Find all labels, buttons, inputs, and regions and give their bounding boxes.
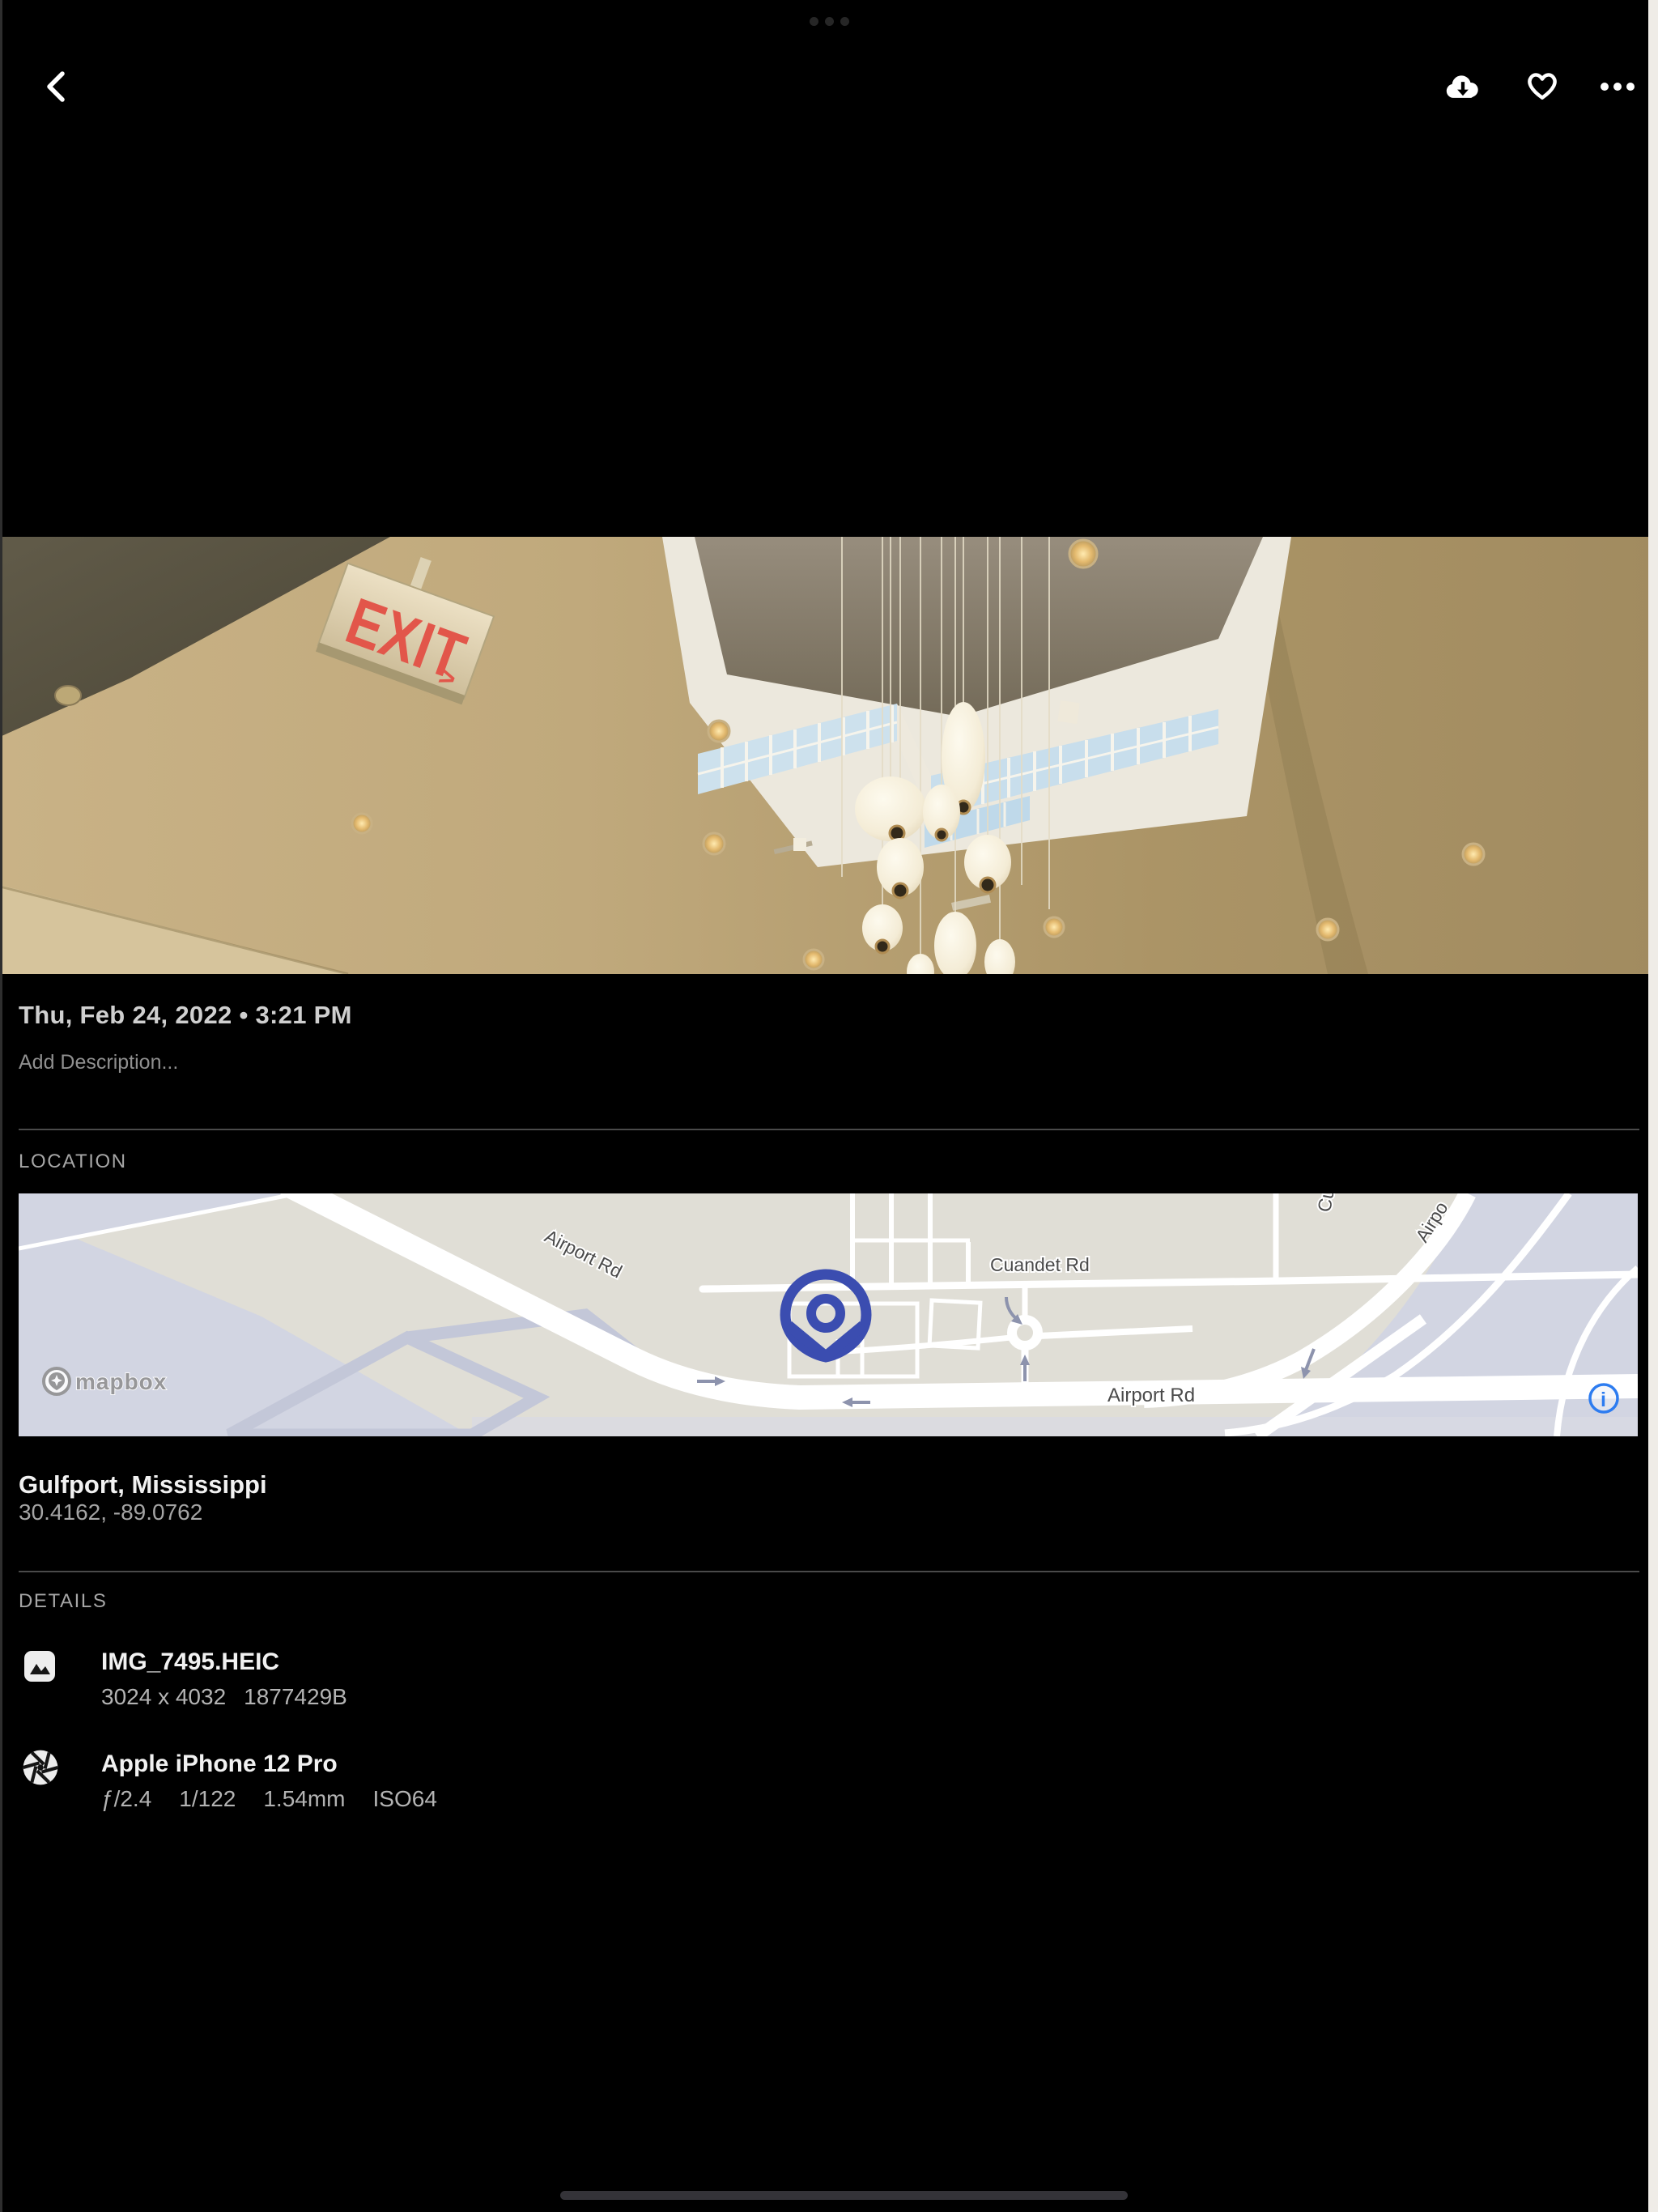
favorite-button[interactable]	[1525, 70, 1559, 106]
camera-iso: ISO64	[373, 1786, 437, 1811]
file-detail-row: IMG_7495.HEIC 3024 x 40321877429B	[0, 1644, 1658, 1725]
ellipsis-icon	[1600, 82, 1635, 91]
location-coordinates: 30.4162, -89.0762	[19, 1499, 202, 1525]
heart-icon	[1525, 70, 1559, 102]
camera-name: Apple iPhone 12 Pro	[101, 1750, 338, 1778]
more-options-button[interactable]	[1600, 81, 1635, 96]
svg-text:i: i	[1601, 1389, 1606, 1411]
svg-text:Cuandet Rd: Cuandet Rd	[990, 1254, 1090, 1275]
file-name: IMG_7495.HEIC	[101, 1648, 279, 1676]
home-indicator[interactable]	[560, 2191, 1128, 2200]
photo-detail-screen: EXIT > Thu, Feb 24, 2022 • 3:21 PM Add D…	[0, 0, 1658, 2212]
photo-date: Thu, Feb 24, 2022 • 3:21 PM	[19, 1001, 352, 1030]
description-input[interactable]: Add Description...	[19, 1051, 178, 1074]
chevron-left-icon	[40, 68, 71, 105]
map-info-button[interactable]: i	[1590, 1385, 1618, 1412]
mapbox-logo[interactable]: mapbox	[44, 1368, 167, 1394]
camera-aperture: ƒ/2.4	[101, 1786, 151, 1811]
file-dimensions: 3024 x 4032	[101, 1684, 226, 1709]
location-map[interactable]: Airport Rd Cuandet Rd Airport Rd Airpo C…	[19, 1193, 1638, 1436]
divider	[19, 1571, 1639, 1572]
svg-text:Airport Rd: Airport Rd	[1107, 1385, 1195, 1406]
camera-detail-row: Apple iPhone 12 Pro ƒ/2.41/1221.54mmISO6…	[0, 1742, 1658, 1823]
scrollbar-track[interactable]	[1648, 0, 1658, 2212]
divider	[19, 1129, 1639, 1130]
location-section-label: LOCATION	[19, 1151, 127, 1173]
file-size: 1877429B	[244, 1684, 347, 1709]
location-place: Gulfport, Mississippi	[19, 1470, 267, 1499]
photo-image[interactable]: EXIT >	[0, 537, 1658, 974]
svg-text:Cu: Cu	[1313, 1193, 1338, 1214]
camera-meta: ƒ/2.41/1221.54mmISO64	[101, 1786, 465, 1812]
download-button[interactable]	[1443, 73, 1482, 106]
multitask-indicator[interactable]	[0, 15, 1658, 29]
cloud-download-icon	[1443, 73, 1482, 102]
back-button[interactable]	[40, 68, 71, 109]
window-left-edge	[0, 0, 2, 2212]
camera-shutter: 1/122	[179, 1786, 236, 1811]
svg-text:mapbox: mapbox	[75, 1369, 167, 1394]
file-meta: 3024 x 40321877429B	[101, 1684, 375, 1710]
image-file-icon	[23, 1650, 56, 1682]
camera-focal-length: 1.54mm	[263, 1786, 345, 1811]
details-section-label: DETAILS	[19, 1590, 107, 1613]
aperture-icon	[22, 1749, 59, 1786]
